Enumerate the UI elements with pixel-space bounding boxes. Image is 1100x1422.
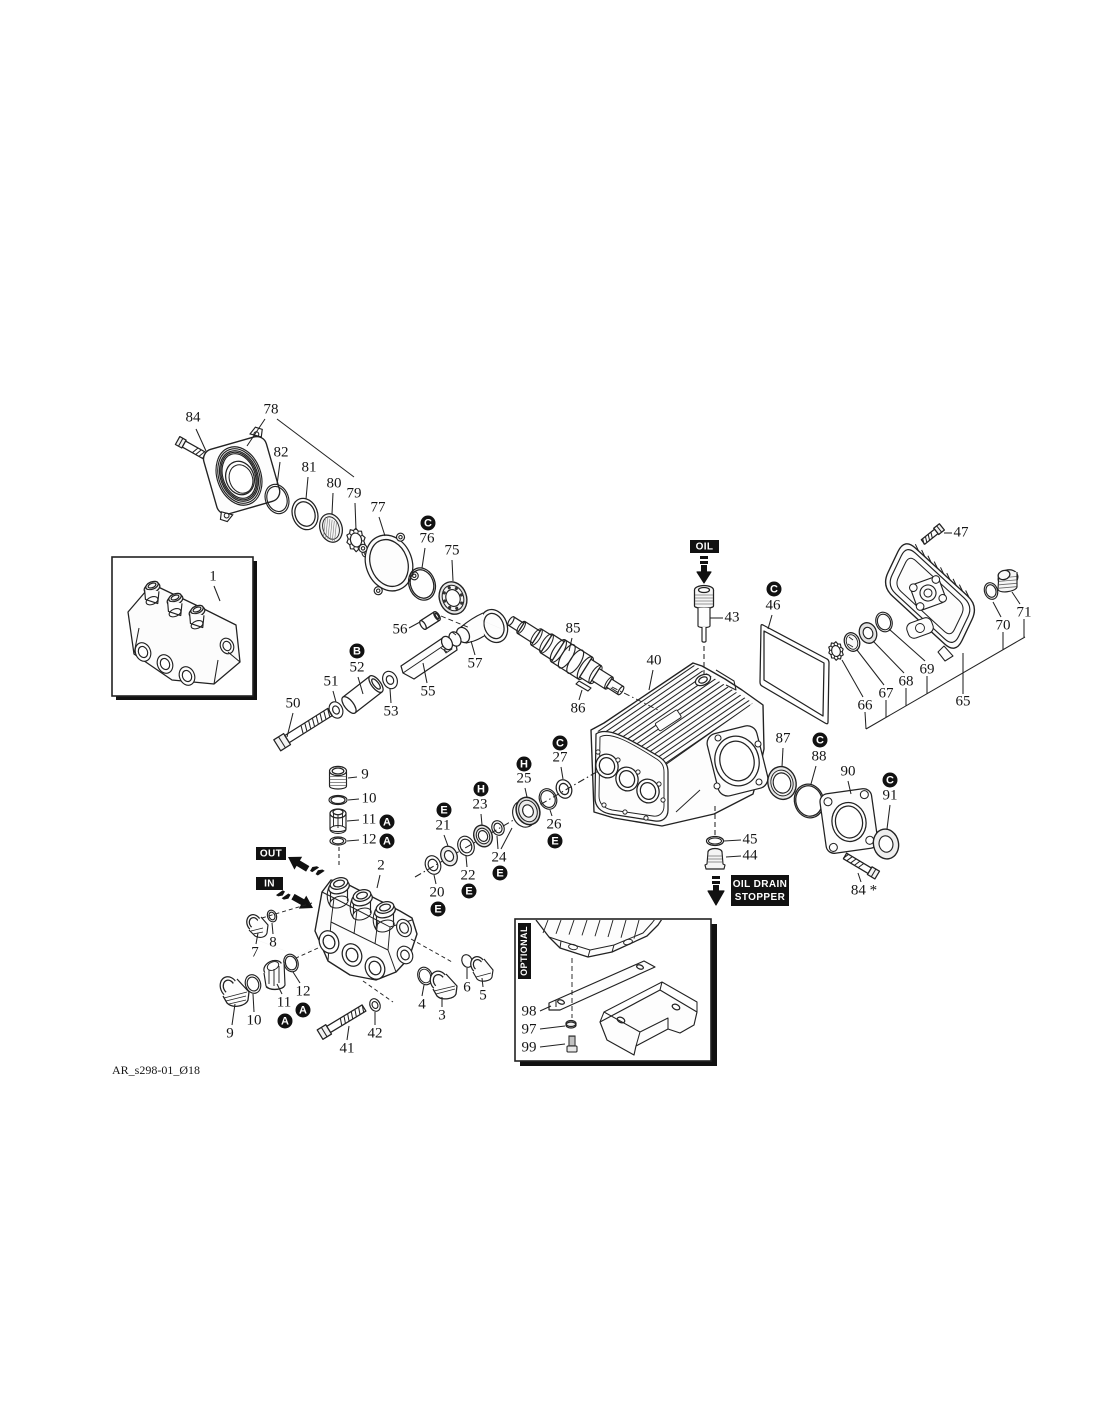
svg-text:OUT: OUT [260, 849, 282, 860]
svg-text:98: 98 [522, 1003, 537, 1019]
svg-text:79: 79 [347, 485, 362, 501]
svg-text:99: 99 [522, 1039, 537, 1055]
svg-text:76: 76 [420, 530, 436, 546]
svg-text:66: 66 [858, 697, 874, 713]
svg-text:44: 44 [743, 847, 759, 863]
svg-text:9: 9 [226, 1025, 234, 1041]
svg-text:77: 77 [371, 499, 387, 515]
svg-text:69: 69 [920, 661, 935, 677]
svg-text:84: 84 [186, 409, 202, 425]
svg-text:91: 91 [883, 787, 898, 803]
svg-text:20: 20 [430, 884, 445, 900]
svg-text:86: 86 [571, 700, 587, 716]
svg-text:43: 43 [725, 609, 740, 625]
svg-text:56: 56 [393, 621, 409, 637]
svg-text:25: 25 [517, 770, 532, 786]
svg-text:46: 46 [766, 597, 782, 613]
svg-text:A: A [299, 1004, 307, 1016]
svg-text:67: 67 [879, 685, 895, 701]
svg-text:C: C [424, 517, 432, 529]
svg-text:70: 70 [996, 617, 1011, 633]
svg-text:11: 11 [277, 994, 291, 1010]
svg-text:71: 71 [1017, 604, 1032, 620]
svg-text:42: 42 [368, 1025, 383, 1041]
svg-text:6: 6 [463, 979, 471, 995]
svg-text:A: A [383, 835, 391, 847]
svg-text:C: C [556, 737, 564, 749]
svg-text:40: 40 [647, 652, 662, 668]
svg-text:E: E [551, 835, 558, 847]
svg-text:11: 11 [362, 811, 376, 827]
svg-text:7: 7 [251, 944, 259, 960]
svg-text:41: 41 [340, 1040, 355, 1056]
svg-text:90: 90 [841, 763, 856, 779]
svg-text:85: 85 [566, 620, 581, 636]
svg-text:9: 9 [361, 766, 369, 782]
svg-text:OPTIONAL: OPTIONAL [519, 926, 529, 976]
svg-text:57: 57 [468, 655, 484, 671]
svg-text:68: 68 [899, 673, 914, 689]
svg-text:OIL DRAIN: OIL DRAIN [733, 879, 788, 890]
svg-text:OIL: OIL [696, 542, 714, 553]
svg-text:E: E [434, 903, 441, 915]
svg-text:C: C [886, 774, 894, 786]
svg-text:52: 52 [350, 659, 365, 675]
svg-text:78: 78 [264, 401, 279, 417]
svg-text:C: C [816, 734, 824, 746]
svg-text:5: 5 [479, 987, 487, 1003]
svg-text:97: 97 [522, 1021, 538, 1037]
svg-text:55: 55 [421, 683, 436, 699]
svg-text:4: 4 [418, 996, 426, 1012]
svg-text:82: 82 [274, 444, 289, 460]
svg-text:23: 23 [473, 796, 488, 812]
svg-text:88: 88 [812, 748, 827, 764]
svg-text:1: 1 [209, 568, 217, 584]
svg-text:80: 80 [327, 475, 342, 491]
svg-text:87: 87 [776, 730, 792, 746]
svg-text:E: E [465, 885, 472, 897]
svg-text:50: 50 [286, 695, 301, 711]
svg-text:E: E [496, 867, 503, 879]
svg-text:53: 53 [384, 703, 399, 719]
svg-text:2: 2 [377, 857, 385, 873]
svg-text:21: 21 [436, 817, 451, 833]
svg-text:75: 75 [445, 542, 460, 558]
svg-text:STOPPER: STOPPER [735, 892, 786, 903]
svg-text:12: 12 [296, 983, 311, 999]
svg-text:E: E [440, 804, 447, 816]
svg-text:10: 10 [362, 790, 377, 806]
svg-text:8: 8 [269, 934, 277, 950]
svg-text:10: 10 [247, 1012, 262, 1028]
svg-text:26: 26 [547, 816, 563, 832]
svg-text:B: B [353, 645, 361, 657]
svg-text:IN: IN [264, 879, 275, 890]
svg-text:AR_s298-01_Ø18: AR_s298-01_Ø18 [112, 1063, 200, 1077]
svg-text:51: 51 [324, 673, 339, 689]
svg-text:22: 22 [461, 867, 476, 883]
svg-text:81: 81 [302, 459, 317, 475]
svg-text:H: H [477, 783, 485, 795]
svg-text:84 *: 84 * [851, 882, 877, 898]
svg-text:27: 27 [553, 749, 569, 765]
svg-text:45: 45 [743, 831, 758, 847]
svg-text:A: A [281, 1015, 289, 1027]
svg-text:H: H [520, 758, 528, 770]
svg-text:C: C [770, 583, 778, 595]
svg-text:47: 47 [954, 524, 970, 540]
svg-text:A: A [383, 816, 391, 828]
svg-text:24: 24 [492, 849, 508, 865]
svg-text:3: 3 [438, 1007, 446, 1023]
svg-text:12: 12 [362, 831, 377, 847]
